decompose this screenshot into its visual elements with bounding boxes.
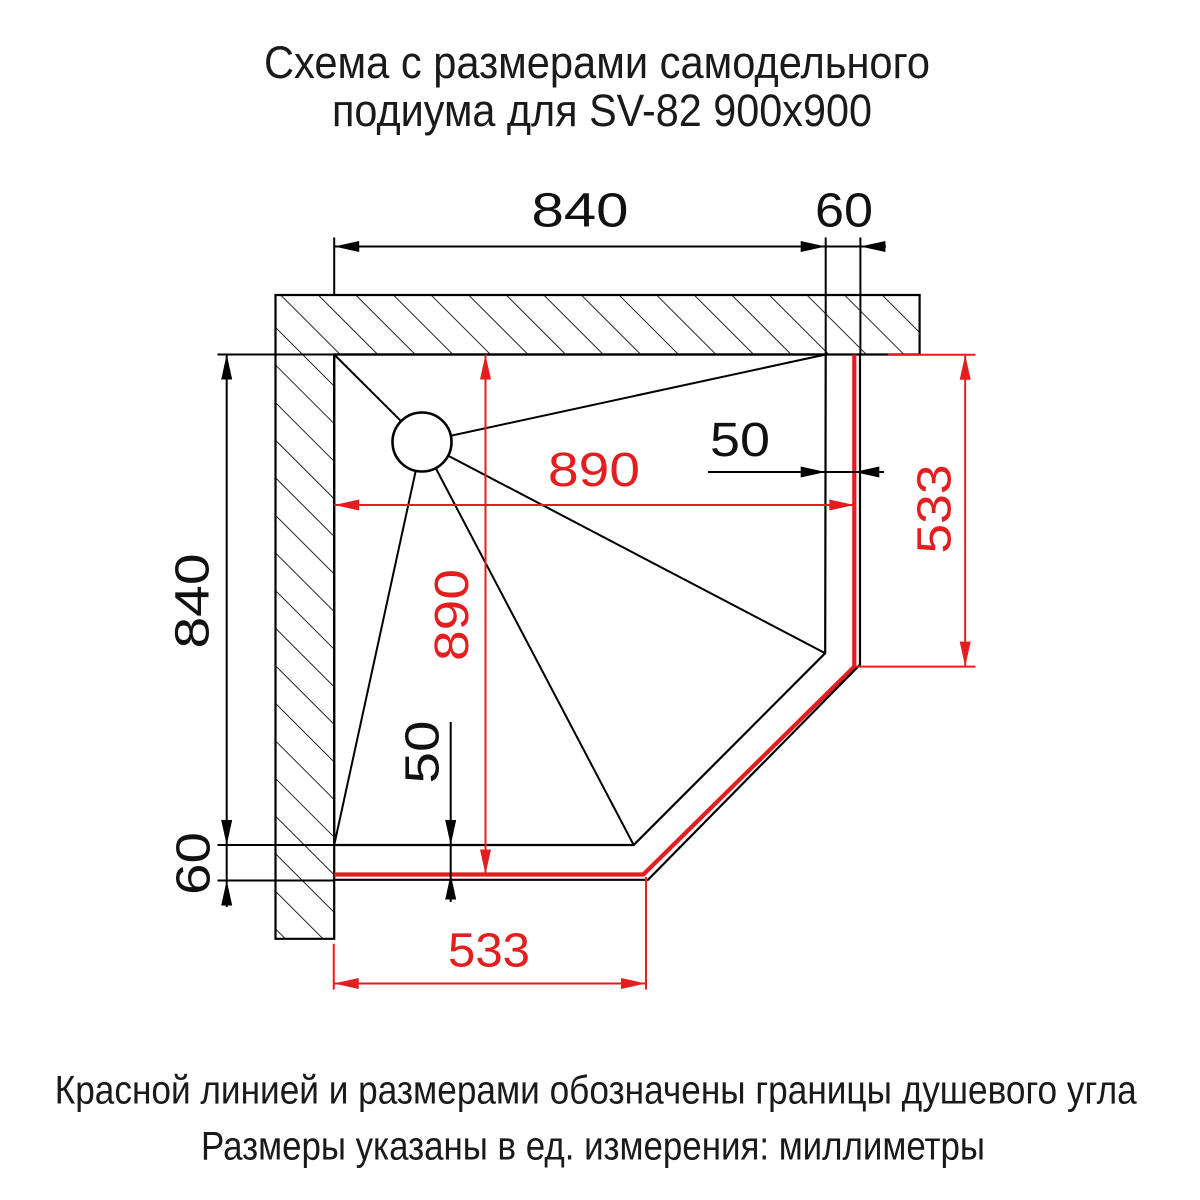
svg-text:60: 60 [815,185,873,238]
svg-text:подиума для SV-82 900x900: подиума для SV-82 900x900 [332,85,872,136]
svg-text:890: 890 [426,569,479,661]
svg-text:Красной линией и размерами обо: Красной линией и размерами обозначены гр… [55,1069,1138,1113]
svg-text:533: 533 [448,925,530,978]
svg-text:Размеры указаны в ед. измерени: Размеры указаны в ед. измерения: миллиме… [201,1125,985,1169]
svg-text:50: 50 [710,414,770,467]
svg-text:533: 533 [909,465,962,554]
svg-text:890: 890 [548,444,640,497]
svg-text:60: 60 [168,832,221,895]
svg-text:50: 50 [397,721,450,784]
svg-text:840: 840 [167,554,220,649]
svg-text:840: 840 [532,185,629,238]
svg-text:Схема с размерами самодельного: Схема с размерами самодельного [264,37,930,88]
